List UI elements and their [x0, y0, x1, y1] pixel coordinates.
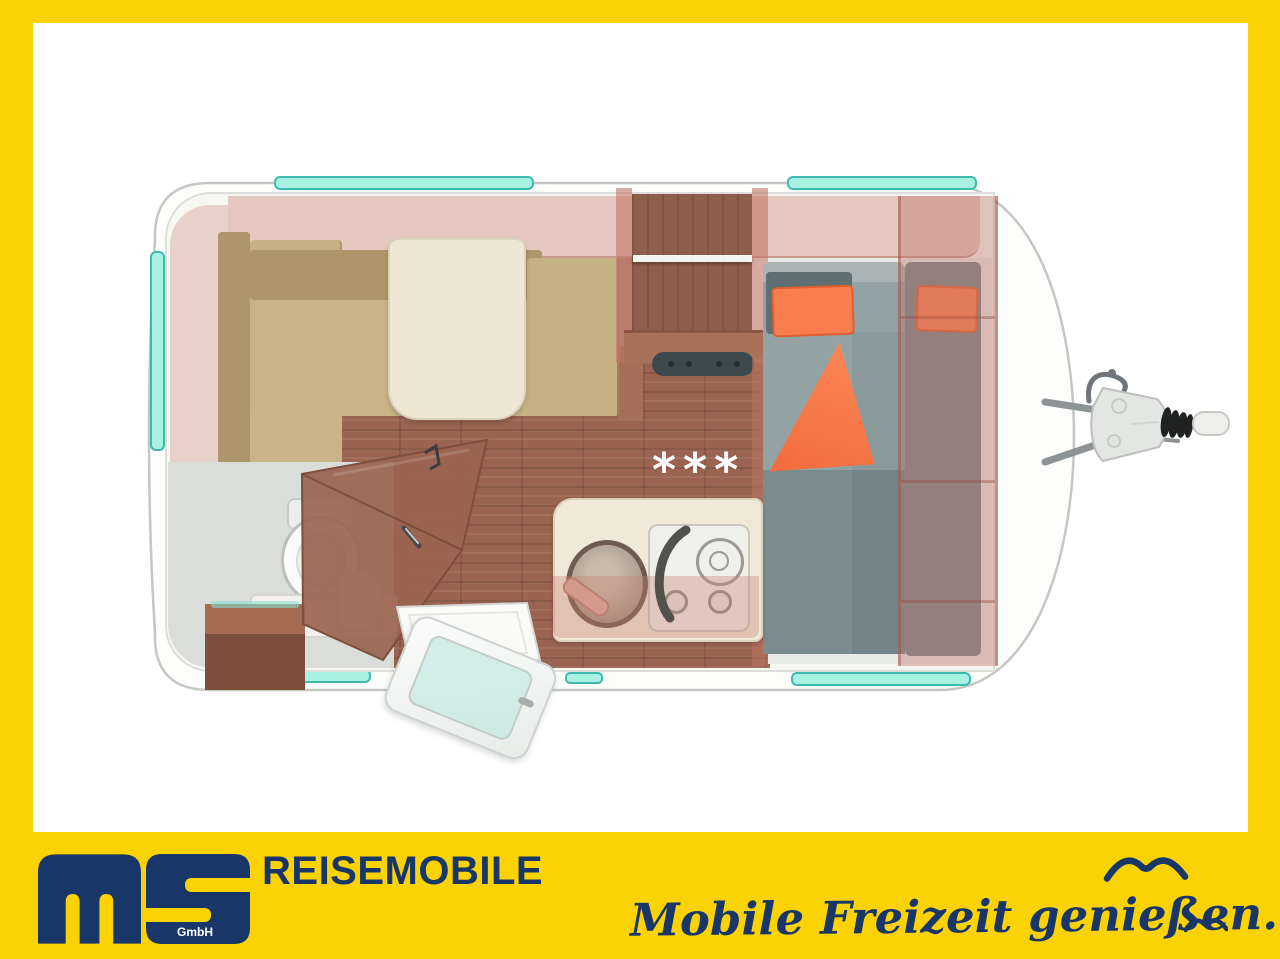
- tow-hitch: [1045, 369, 1229, 462]
- logo-gmbh-label: GmbH: [163, 925, 213, 939]
- hitch-pin: [1193, 412, 1229, 435]
- photo-canvas: ***: [33, 23, 1248, 832]
- ms-logo-m-glyph: [38, 854, 141, 943]
- overlay-svg: [33, 23, 1248, 832]
- seagull-large-path: [1107, 861, 1185, 879]
- seagull-icon-small: [1184, 912, 1228, 938]
- seagull-small-path: [1186, 921, 1227, 930]
- caravan-floorplan: ***: [33, 23, 1248, 832]
- yellow-frame: *** GmbH REISEMOBILE Mobile Freizeit gen…: [0, 0, 1280, 959]
- handbrake-knob: [1108, 369, 1116, 377]
- division-title: REISEMOBILE: [262, 849, 543, 894]
- stove-lid-curve: [659, 530, 686, 618]
- seagull-icon-large: [1103, 850, 1189, 888]
- ms-logo-m: [38, 854, 141, 944]
- coupling-head: [1091, 388, 1168, 461]
- brand-slogan: Mobile Freizeit genießen.: [630, 888, 1146, 946]
- brand-banner: GmbH REISEMOBILE Mobile Freizeit genieße…: [0, 832, 1280, 959]
- floor-vent-marking: ***: [652, 443, 782, 497]
